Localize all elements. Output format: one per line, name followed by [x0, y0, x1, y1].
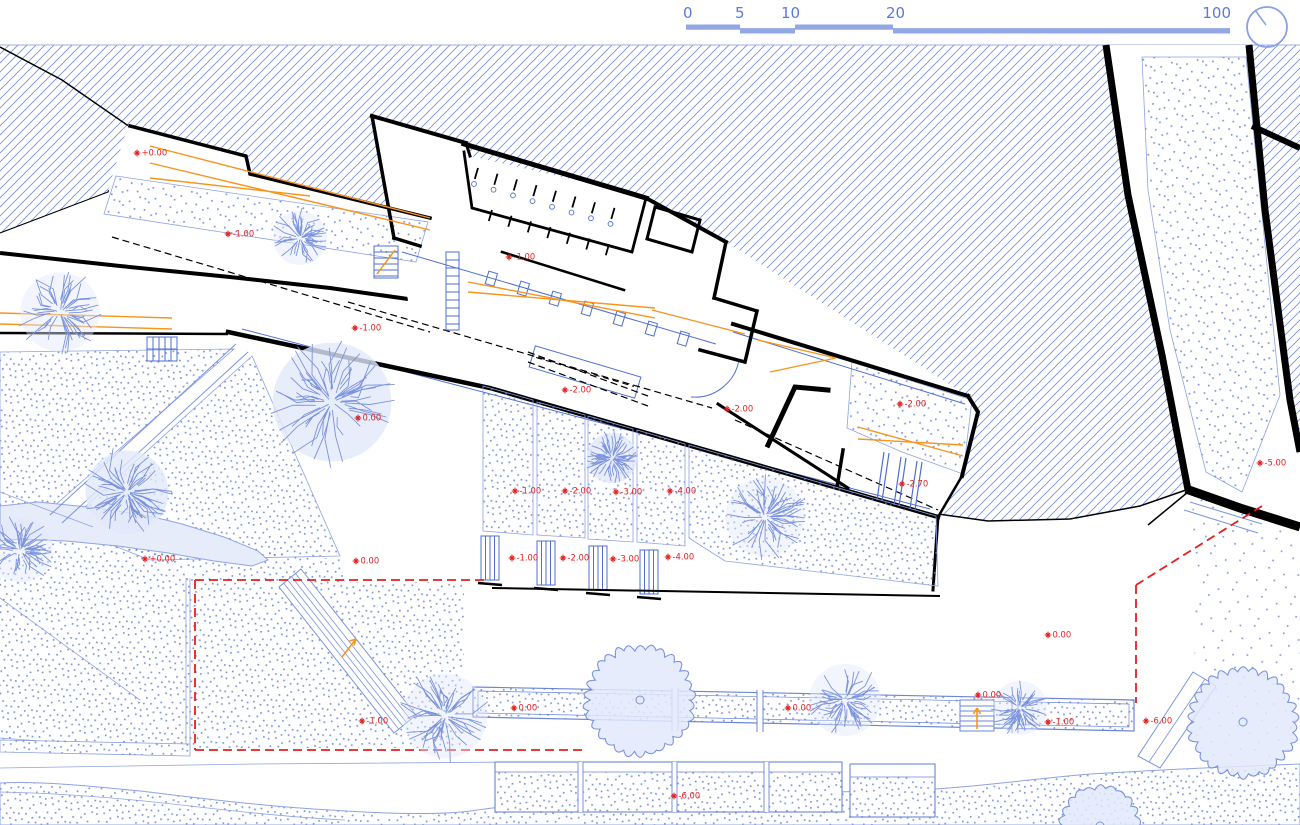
level-label: -2.00 [568, 553, 590, 563]
level-label: 0.00 [793, 703, 812, 713]
scale-tick: 5 [735, 4, 745, 22]
tree-spiky [809, 664, 881, 736]
level-label: 0.00 [519, 703, 538, 713]
level-label: -1.00 [517, 553, 539, 563]
level-label: -2.00 [905, 399, 927, 409]
level-label: -3.00 [618, 554, 640, 564]
level-label: -2.70 [907, 479, 929, 489]
scale-tick: 20 [886, 4, 905, 22]
level-label: 0.00 [363, 413, 382, 423]
level-label: 0.00 [1053, 630, 1072, 640]
level-label: -6.00 [1151, 716, 1173, 726]
level-label: 0.00 [361, 556, 380, 566]
site-plan-canvas: +0.00-1.00-1.00-1.00-2.00-2.00-2.00-2.70… [0, 0, 1300, 825]
level-label: -5.00 [1265, 458, 1287, 468]
site-plan-page: +0.00-1.00-1.00-1.00-2.00-2.00-2.00-2.70… [0, 0, 1300, 825]
scale-tick: 10 [781, 4, 800, 22]
level-label: -1.00 [520, 486, 542, 496]
level-label: -2.00 [570, 486, 592, 496]
scale-tick: 100 [1202, 4, 1231, 22]
level-label: -1.00 [360, 323, 382, 333]
level-label: -1.00 [367, 716, 389, 726]
level-label: +0.00 [150, 554, 176, 564]
level-label: -3.00 [621, 487, 643, 497]
level-label: +0.00 [142, 148, 168, 158]
level-label: -6.00 [679, 791, 701, 801]
level-label: -1.00 [514, 252, 536, 262]
level-label: -1.00 [1053, 717, 1075, 727]
level-label: -1.00 [233, 229, 255, 239]
level-label: 0.00 [983, 690, 1002, 700]
level-label: -2.00 [570, 385, 592, 395]
level-label: -4.00 [675, 486, 697, 496]
esplanade-stair [960, 700, 994, 731]
level-label: -2.00 [732, 404, 754, 414]
scale-tick: 0 [683, 4, 693, 22]
level-label: -4.00 [673, 552, 695, 562]
